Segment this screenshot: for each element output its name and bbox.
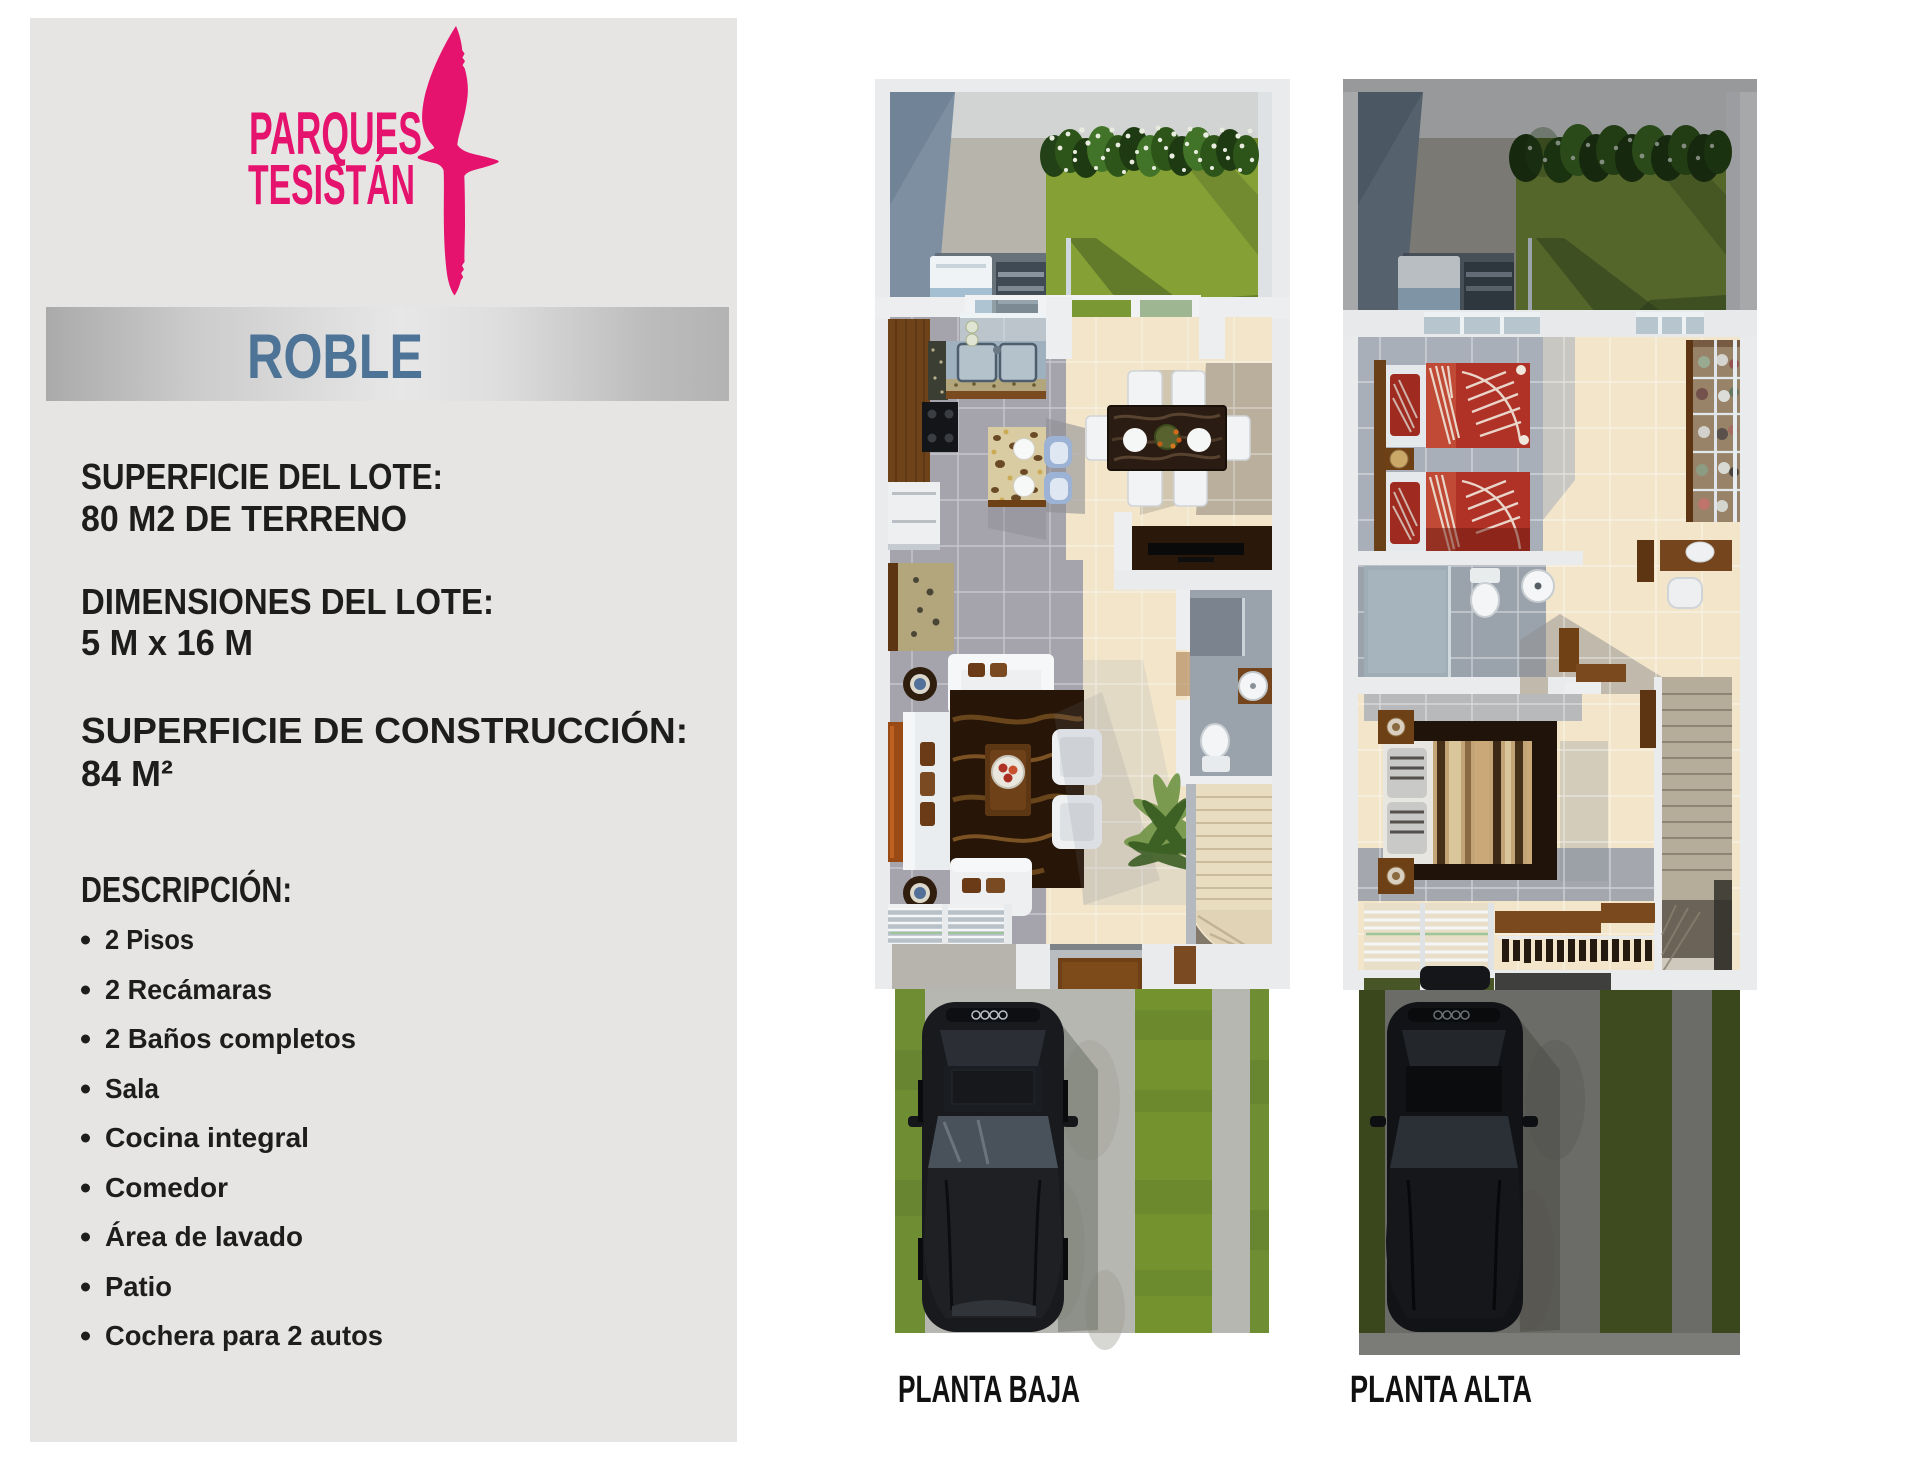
svg-text:2 Pisos: 2 Pisos — [105, 924, 194, 955]
svg-text:Cochera para 2 autos: Cochera para 2 autos — [105, 1320, 383, 1351]
svg-text:DIMENSIONES DEL LOTE:: DIMENSIONES DEL LOTE: — [81, 581, 494, 622]
svg-text:Comedor: Comedor — [105, 1172, 228, 1203]
svg-text:Cocina integral: Cocina integral — [105, 1122, 309, 1153]
svg-text:SUPERFICIE DE CONSTRUCCIÓN:: SUPERFICIE DE CONSTRUCCIÓN: — [81, 709, 688, 751]
svg-text:TESISTÁN: TESISTÁN — [248, 153, 415, 217]
svg-text:5 M x 16 M: 5 M x 16 M — [81, 622, 253, 663]
svg-text:2 Baños completos: 2 Baños completos — [105, 1023, 356, 1054]
svg-text:2 Recámaras: 2 Recámaras — [105, 974, 272, 1005]
svg-text:Área de lavado: Área de lavado — [105, 1221, 303, 1252]
svg-text:SUPERFICIE DEL LOTE:: SUPERFICIE DEL LOTE: — [81, 456, 443, 497]
svg-text:80 M2 DE TERRENO: 80 M2 DE TERRENO — [81, 498, 407, 539]
svg-text:DESCRIPCIÓN:: DESCRIPCIÓN: — [81, 868, 292, 910]
svg-text:PLANTA ALTA: PLANTA ALTA — [1350, 1369, 1532, 1411]
svg-text:84 M²: 84 M² — [81, 753, 173, 794]
svg-text:PLANTA BAJA: PLANTA BAJA — [898, 1369, 1080, 1411]
svg-text:Sala: Sala — [105, 1073, 159, 1104]
svg-text:ROBLE: ROBLE — [247, 322, 423, 392]
svg-text:Patio: Patio — [105, 1271, 172, 1302]
